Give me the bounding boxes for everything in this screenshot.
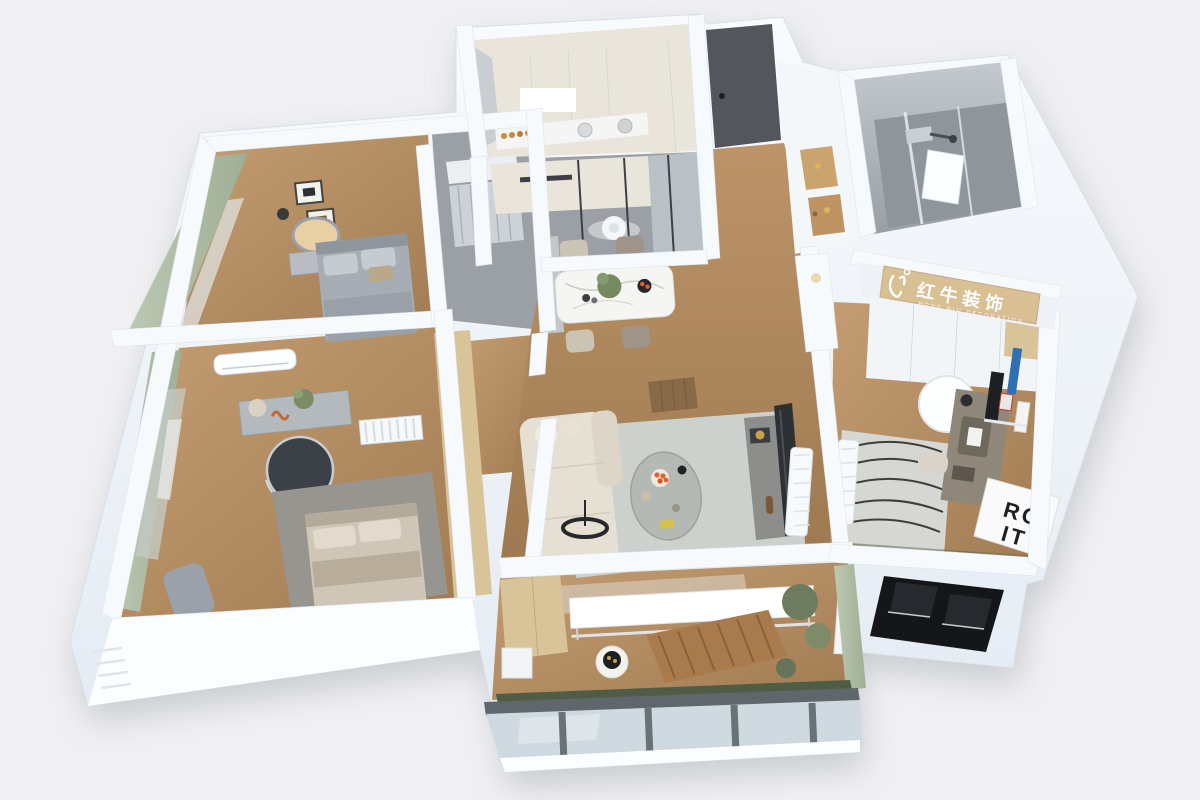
art-print xyxy=(999,393,1013,411)
front-door xyxy=(706,24,781,148)
washer xyxy=(502,648,532,678)
door-handle xyxy=(719,93,725,99)
side-table xyxy=(596,646,628,678)
storage-cabinet xyxy=(500,574,568,660)
dining-chair xyxy=(565,329,595,353)
heater-panel xyxy=(922,150,964,204)
light-panel xyxy=(520,88,576,112)
apartment-floorplan: RO IT xyxy=(0,0,1200,800)
cooktop xyxy=(618,119,632,133)
bathroom xyxy=(874,102,1026,228)
vase xyxy=(642,492,651,501)
nightstand xyxy=(289,250,321,275)
radiator xyxy=(359,415,423,444)
dining-chair xyxy=(621,325,651,349)
dining-table xyxy=(554,264,675,324)
sink xyxy=(578,123,592,137)
hall-lamp xyxy=(811,273,821,283)
cup xyxy=(678,466,687,475)
render-canvas: RO IT xyxy=(0,0,1200,800)
wall-lamp xyxy=(277,208,289,220)
glass-panel xyxy=(648,152,706,258)
